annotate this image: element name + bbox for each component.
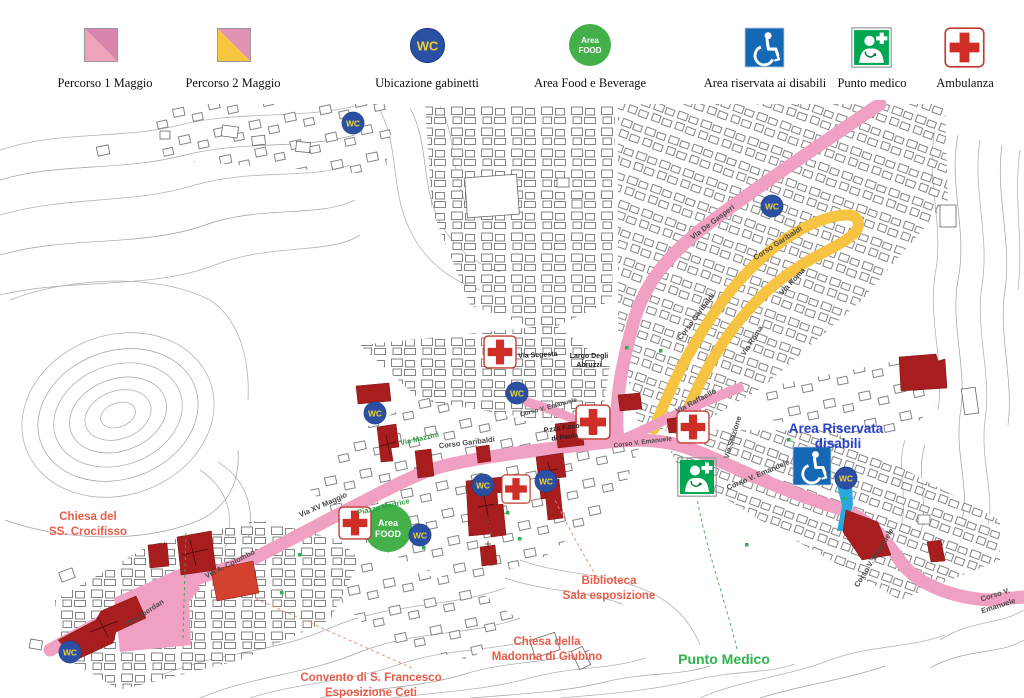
legend-label-food: Area Food e Beverage: [534, 76, 646, 91]
svg-text:Area: Area: [581, 36, 599, 45]
wc-icon: [835, 467, 857, 489]
poi-label-giubino: Madonna di Giubino: [492, 651, 603, 663]
medic-point-icon: [678, 458, 716, 496]
wc-icon: [59, 641, 81, 663]
poi-label-crocifisso: SS. Crocifisso: [49, 526, 127, 538]
legend-label-percorso-1: Percorso 1 Maggio: [57, 76, 152, 91]
poi-label-biblioteca: Sala esposizione: [563, 590, 656, 602]
poi-label-giubino: Chiesa della: [513, 636, 581, 648]
disabled-area-icon: [744, 27, 785, 68]
svg-text:FOOD: FOOD: [578, 46, 601, 55]
ambulance-icon: [484, 336, 516, 368]
wc-icon: [409, 524, 431, 546]
ambulance-icon: [944, 27, 985, 68]
poi-label-convento: Esposizione Ceti: [325, 687, 417, 698]
poi-label-crocifisso: Chiesa del: [59, 511, 117, 523]
street-label-largo-abruzzi: Largo Degli: [570, 353, 609, 360]
wc-icon: [342, 112, 364, 134]
area-food-icon: Area FOOD: [567, 22, 613, 68]
ambulance-icon: [677, 411, 709, 443]
poi-label-area-riservata: disabili: [815, 436, 862, 451]
disabled-area-icon: [793, 447, 831, 485]
percorso-1-swatch: [84, 28, 118, 62]
svg-text:Area: Area: [378, 518, 399, 528]
poi-label-punto-medico: Punto Medico: [678, 651, 770, 667]
legend-label-medico: Punto medico: [837, 76, 906, 91]
wc-icon: [472, 474, 494, 496]
percorso-2-swatch: [217, 28, 251, 62]
map-svg: Area FOOD Via De Gasperi Corso Garibal: [0, 100, 1024, 698]
svg-text:FOOD: FOOD: [375, 529, 401, 539]
wc-icon: [535, 470, 557, 492]
poi-label-area-riservata: Area Riservata: [789, 421, 884, 436]
wc-icon: [761, 195, 783, 217]
city-map: Area FOOD Via De Gasperi Corso Garibal: [0, 100, 1024, 698]
poi-label-biblioteca: Biblioteca: [582, 575, 638, 587]
medic-point-icon: [851, 27, 892, 68]
poi-label-convento: Convento di S. Francesco: [300, 672, 441, 684]
legend-label-percorso-2: Percorso 2 Maggio: [185, 76, 280, 91]
legend-label-disabili: Area riservata ai disabili: [704, 76, 827, 91]
wc-icon: [506, 382, 528, 404]
ambulance-icon: [502, 475, 530, 503]
street-label-largo-abruzzi: Abruzzi: [576, 362, 601, 369]
ambulance-icon: [576, 405, 610, 439]
wc-icon: [409, 27, 446, 64]
wc-icon: [364, 402, 386, 424]
legend-label-wc: Ubicazione gabinetti: [375, 76, 479, 91]
event-map-poster: Percorso 1 Maggio Percorso 2 Maggio Ubic…: [0, 0, 1024, 698]
legend: Percorso 1 Maggio Percorso 2 Maggio Ubic…: [0, 0, 1024, 100]
legend-label-ambulanza: Ambulanza: [936, 76, 994, 91]
